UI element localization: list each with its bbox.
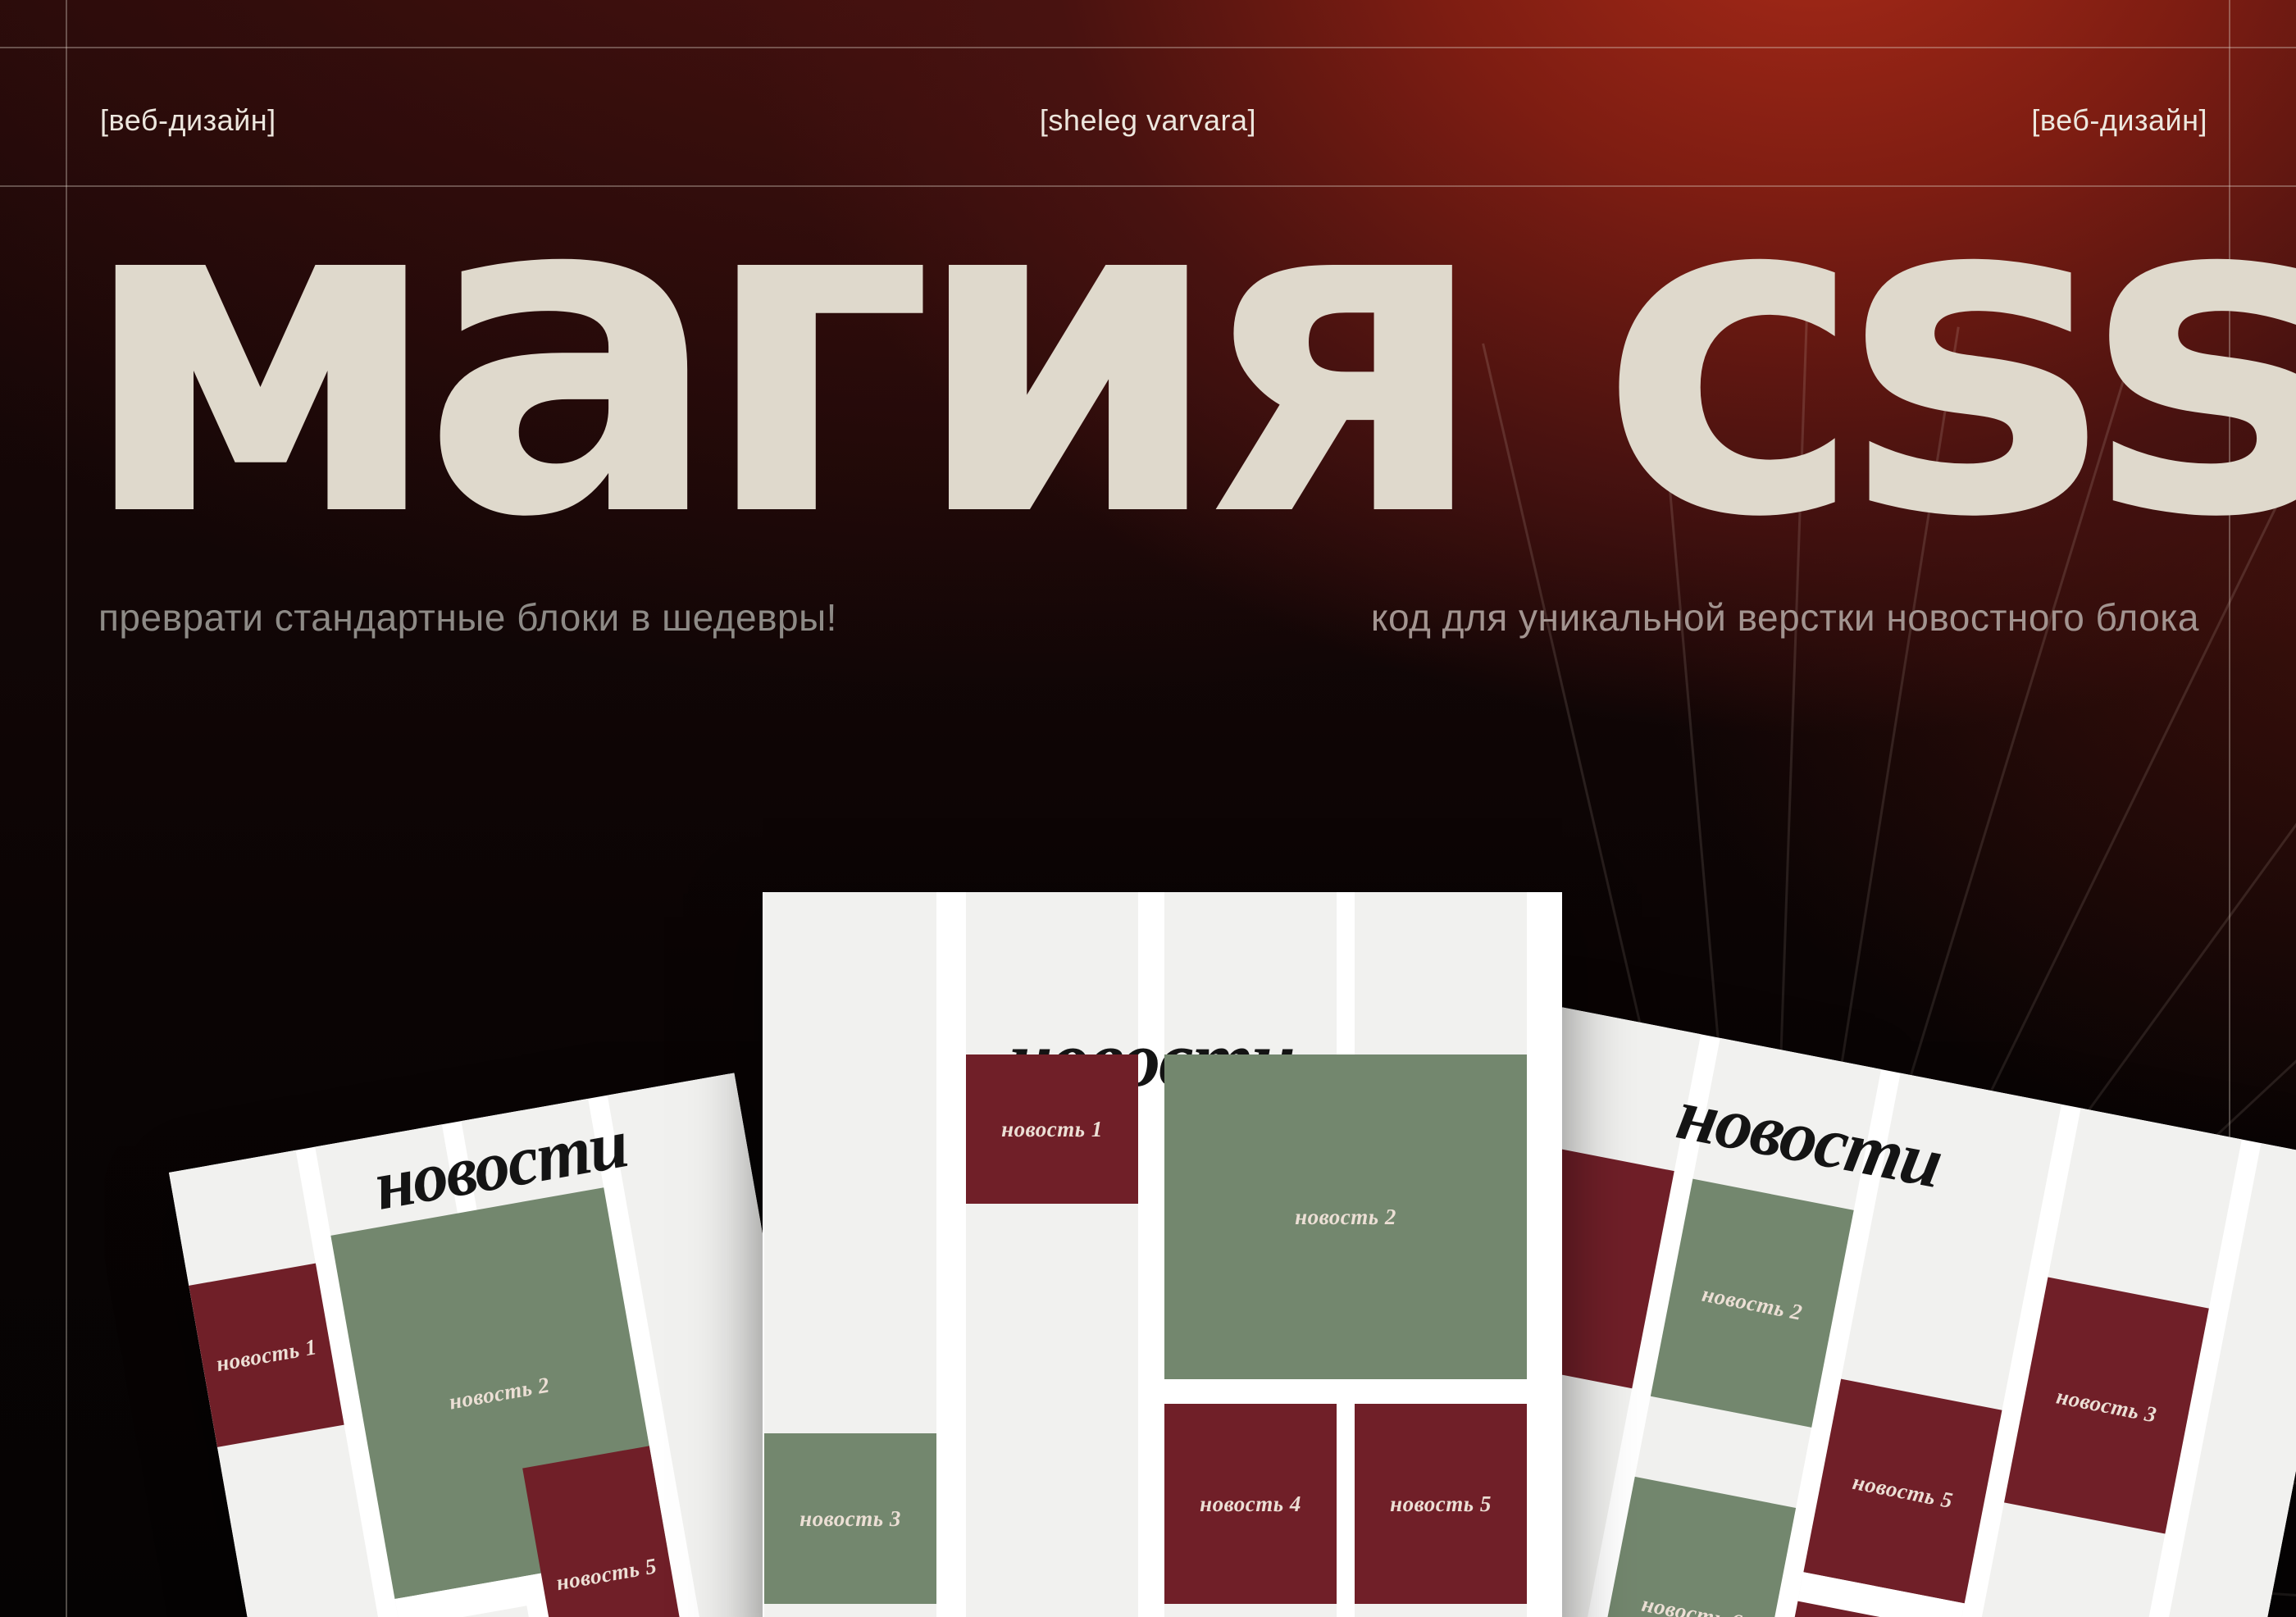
news-block-label: новость 5 xyxy=(1390,1492,1492,1517)
news-block-label: новость 2 xyxy=(447,1372,551,1414)
news-block-label: новость 3 xyxy=(2054,1383,2158,1428)
grid-vertical-line-left xyxy=(66,0,67,1617)
news-block-label: новость 2 xyxy=(1295,1205,1396,1230)
news-block-label: новость 3 xyxy=(799,1506,901,1532)
news-block-label: новость 5 xyxy=(1851,1469,1955,1513)
news-block-1: новость 1 xyxy=(189,1264,344,1447)
news-block-label: новость 1 xyxy=(1001,1117,1103,1142)
news-block-5: новость 5 xyxy=(522,1446,690,1617)
news-block-label: новость 2 xyxy=(1700,1281,1804,1325)
grid-horizontal-line-top xyxy=(0,47,2296,48)
poster-page: [веб-дизайн] [sheleg varvara] [веб-дизай… xyxy=(0,0,2296,1617)
news-block-label: новость 4 xyxy=(1200,1492,1301,1517)
news-block-3: новость 3 xyxy=(764,1433,936,1604)
hero-subtitle-right: код для уникальной верстки новостного бл… xyxy=(1371,595,2199,640)
hero-title: магия css xyxy=(78,131,2296,578)
news-block-3: новость 3 xyxy=(2004,1278,2209,1534)
hero-subtitle-left: преврати стандартные блоки в шедевры! xyxy=(98,595,837,640)
news-block-2: новость 2 xyxy=(1164,1054,1527,1379)
news-block-label: новость 5 xyxy=(554,1553,658,1596)
news-mockup-card-center: новости новость 1 новость 2 новость 3 но… xyxy=(763,892,1562,1617)
card-column xyxy=(966,892,1138,1617)
news-block-1: новость 1 xyxy=(966,1054,1138,1204)
news-block-2: новость 2 xyxy=(1651,1179,1854,1428)
news-block-label: новость 1 xyxy=(214,1334,318,1377)
news-block-4: новость 4 xyxy=(1164,1404,1337,1604)
news-block-label: новость 6 xyxy=(1640,1591,1744,1617)
news-block-5: новость 5 xyxy=(1803,1379,2002,1604)
row-gap xyxy=(1164,1379,1527,1404)
news-block-5: новость 5 xyxy=(1355,1404,1527,1604)
